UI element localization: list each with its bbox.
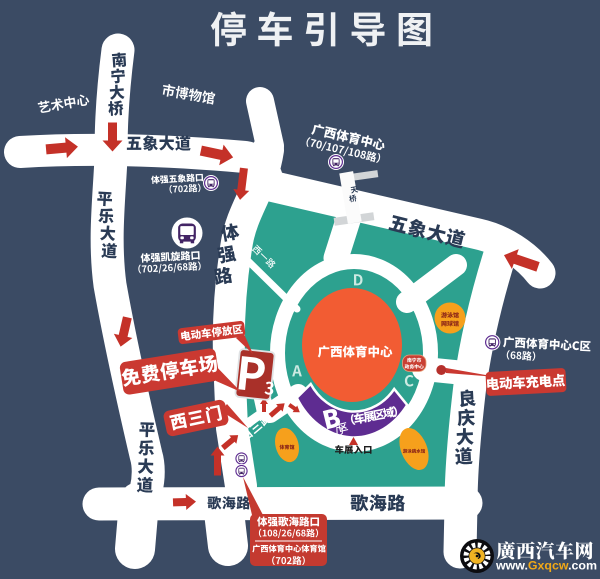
svg-text:www.Gxqcw.com: www.Gxqcw.com xyxy=(495,559,597,573)
